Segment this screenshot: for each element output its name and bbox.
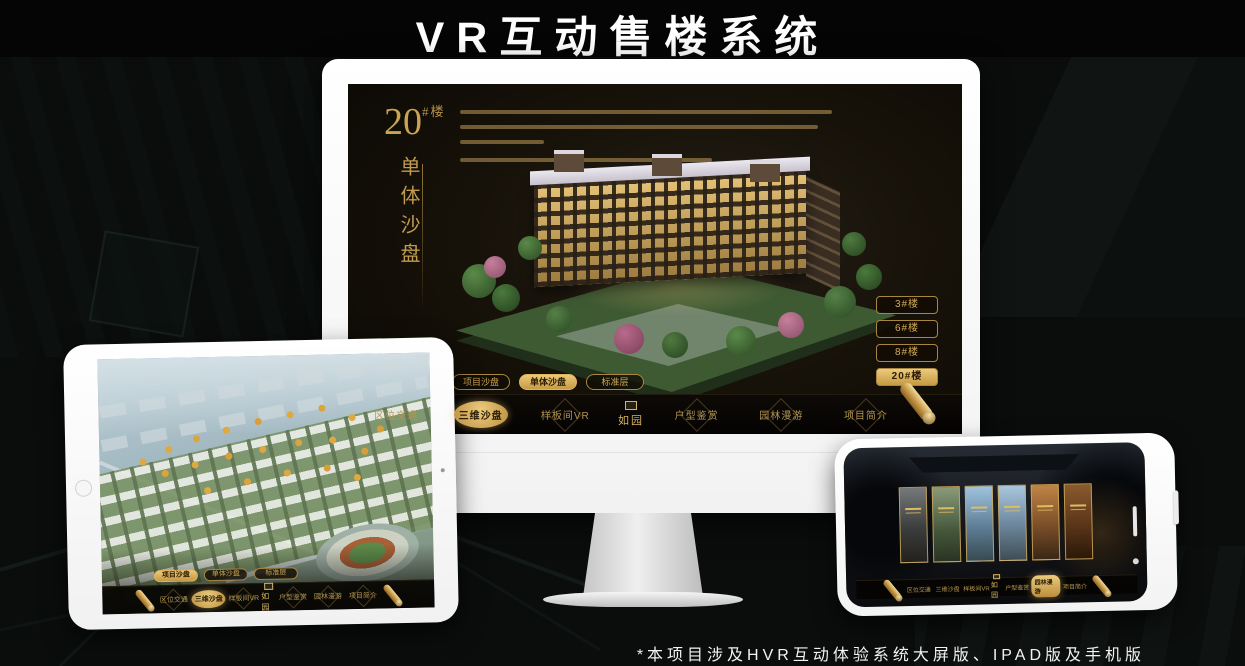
flowering-tree xyxy=(778,312,804,338)
card-label-badge xyxy=(971,506,987,508)
ipad-nav-item-location[interactable]: 区位交通 xyxy=(156,587,191,612)
card-label-badge xyxy=(1004,506,1020,508)
nav-item-project-intro[interactable]: 项目简介 xyxy=(834,398,898,432)
background-aerial-right xyxy=(945,57,1245,317)
building-front-face xyxy=(534,169,806,287)
tree xyxy=(824,286,856,318)
card-label-badge xyxy=(938,507,954,509)
scroll-menu-icon-left[interactable] xyxy=(880,586,904,594)
scroll-menu-icon-left[interactable] xyxy=(132,596,156,604)
building-number: 20 xyxy=(384,101,422,143)
intro-text-line xyxy=(460,110,832,114)
card-label-badge xyxy=(1070,504,1086,506)
building-number-badges xyxy=(139,458,146,465)
scene-card-4[interactable] xyxy=(997,485,1027,562)
logo-seal-icon xyxy=(625,401,637,410)
roof-tower xyxy=(652,154,682,176)
intro-text-line xyxy=(460,125,818,129)
phone-camera-dot xyxy=(1133,558,1139,564)
subtab-single-sandbox[interactable]: 单体沙盘 xyxy=(519,374,577,390)
phone-nav-item-showroom-vr[interactable]: 样板间VR xyxy=(962,579,991,597)
tree xyxy=(546,306,572,332)
card-label-badge xyxy=(1037,505,1053,507)
nav-item-unit-plans[interactable]: 户型鉴赏 xyxy=(665,398,729,432)
scroll-menu-icon-right[interactable] xyxy=(1089,581,1113,589)
phone-nav-item-garden-tour[interactable]: 园林漫游 xyxy=(1031,577,1060,595)
phone-inner-slot xyxy=(1133,506,1138,536)
tree xyxy=(518,236,542,260)
phone-nav-item-unit-plans[interactable]: 户型鉴赏 xyxy=(1003,578,1032,596)
logo-seal-icon xyxy=(993,574,1000,579)
phone-ruyuan-logo: 如园 xyxy=(991,574,1003,600)
roof-tower xyxy=(750,160,780,182)
tree xyxy=(856,264,882,290)
tree xyxy=(726,326,756,356)
scene-card-2[interactable] xyxy=(931,486,961,563)
phone-nav-item-location[interactable]: 区位交通 xyxy=(904,580,933,598)
phone-nav-item-3d-sandbox[interactable]: 三维沙盘 xyxy=(933,579,962,597)
ruyuan-logo: 如园 xyxy=(618,401,644,428)
monitor-stand-base xyxy=(543,592,743,607)
card-label-badge xyxy=(905,508,921,510)
ipad-tablet: 项目沙盘 单体沙盘 标准层 区位交通 三维沙盘 样板间VR 如园 户型鉴赏 园林… xyxy=(63,337,459,630)
phone-nav-item-project-intro[interactable]: 项目简介 xyxy=(1060,577,1089,595)
subtab-project-sandbox[interactable]: 项目沙盘 xyxy=(452,374,510,390)
scroll-menu-icon[interactable] xyxy=(894,382,940,428)
scroll-cap xyxy=(394,598,404,608)
building-side-face xyxy=(806,176,840,292)
ipad-nav-item-3d-sandbox[interactable]: 三维沙盘 xyxy=(191,586,226,611)
scene-card-1[interactable] xyxy=(898,487,928,564)
ipad-home-button xyxy=(75,479,92,496)
ipad-subtab-single-sandbox[interactable]: 单体沙盘 xyxy=(204,568,248,581)
logo-seal-icon xyxy=(264,582,273,589)
page-title: VR互动售楼系统 xyxy=(0,3,1245,65)
tree xyxy=(492,284,520,312)
ipad-nav-item-project-intro[interactable]: 项目简介 xyxy=(345,583,380,608)
flowering-tree xyxy=(614,324,644,354)
scene-card-5[interactable] xyxy=(1030,484,1060,561)
flowering-tree xyxy=(484,256,506,278)
scroll-menu-icon-right[interactable] xyxy=(380,591,404,599)
background-signboard xyxy=(89,230,200,337)
nav-item-3d-sandbox[interactable]: 三维沙盘 xyxy=(449,398,513,432)
roof-tower xyxy=(554,150,584,172)
ipad-camera-dot xyxy=(441,468,445,472)
nav-item-showroom-vr[interactable]: 样板间VR xyxy=(533,398,597,432)
sandbox-subtabs: 项目沙盘 单体沙盘 标准层 xyxy=(452,374,644,390)
smartphone: 区位交通 三维沙盘 样板间VR 如园 户型鉴赏 园林漫游 项目简介 xyxy=(834,432,1178,616)
ipad-nav-item-showroom-vr[interactable]: 样板间VR xyxy=(226,586,261,611)
ipad-nav-item-unit-plans[interactable]: 户型鉴赏 xyxy=(275,584,310,609)
subtab-standard-floor[interactable]: 标准层 xyxy=(586,374,644,390)
ipad-ruyuan-logo: 如园 xyxy=(261,582,276,612)
scene-card-3[interactable] xyxy=(964,485,994,562)
headline-vertical-caption: 单体沙盘 xyxy=(394,156,423,272)
phone-screen: 区位交通 三维沙盘 样板间VR 如园 户型鉴赏 园林漫游 项目简介 xyxy=(843,442,1147,607)
scene-card-6[interactable] xyxy=(1063,483,1093,560)
scene-card-gallery xyxy=(898,483,1093,563)
ipad-screen: 项目沙盘 单体沙盘 标准层 区位交通 三维沙盘 样板间VR 如园 户型鉴赏 园林… xyxy=(97,352,434,614)
ipad-nav-item-garden-tour[interactable]: 园林漫游 xyxy=(310,584,345,609)
monitor-stand-neck xyxy=(583,513,703,597)
promo-canvas: VR互动售楼系统 *本项目涉及HVR互动体验系统大屏版、IPAD版及手机版 20… xyxy=(0,0,1245,666)
ipad-subtab-standard-floor[interactable]: 标准层 xyxy=(254,567,298,580)
floor-button-6[interactable]: 6#楼 xyxy=(876,320,938,338)
building-number-suffix: #楼 xyxy=(422,104,446,119)
nav-item-garden-tour[interactable]: 园林漫游 xyxy=(749,398,813,432)
ipad-navbar: 区位交通 三维沙盘 样板间VR 如园 户型鉴赏 园林漫游 项目简介 xyxy=(102,579,435,614)
tree xyxy=(842,232,866,256)
page-footnote: *本项目涉及HVR互动体验系统大屏版、IPAD版及手机版 xyxy=(637,641,1145,665)
floor-button-8[interactable]: 8#楼 xyxy=(876,344,938,362)
ipad-subtab-project-sandbox[interactable]: 项目沙盘 xyxy=(154,569,198,582)
floor-button-3[interactable]: 3#楼 xyxy=(876,296,938,314)
phone-side-button xyxy=(1173,490,1179,524)
scroll-cap xyxy=(146,603,156,613)
tree xyxy=(662,332,688,358)
